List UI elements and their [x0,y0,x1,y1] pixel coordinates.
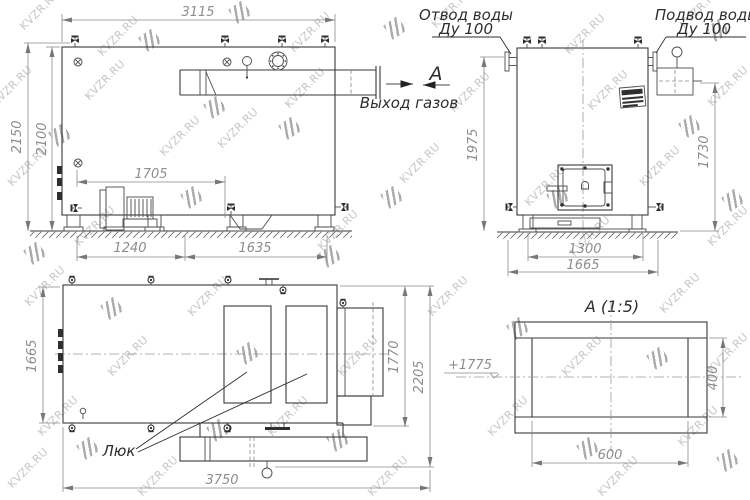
support-legs [64,215,334,231]
section-label: А [428,63,443,85]
vent-fitting-icon [74,58,82,66]
dim-side-height-body: 2100 [35,122,50,155]
dim-plan-total-depth: 2205 [412,360,427,393]
side-dimensions [24,14,335,261]
dim-detail-width: 600 [598,448,623,463]
top-flange-stub [259,279,279,285]
plan-view: Люк 1665 1770 2205 3750 [25,277,434,492]
valve-icon [634,38,642,49]
dim-plan-duct: 1770 [387,340,402,373]
valve-icon [71,37,79,48]
vent-fitting-icon [223,58,231,66]
front-view: Отвод воды Ду 100 Подвод воды Ду 100 197… [419,6,750,276]
hatch-2 [286,306,327,403]
base-frame [519,215,646,232]
valve-icon [224,423,230,431]
valve-icon [340,300,346,308]
drain-valve-icon [652,203,663,211]
valve-icon [221,37,229,48]
dim-front-height-right: 1730 [697,135,712,168]
dim-plan-length: 3750 [205,473,238,488]
gas-duct [180,66,380,99]
gas-outlet-label: Выход газов [360,94,459,112]
water-outlet-label-2: Ду 100 [438,20,493,38]
valve-icon [69,277,75,285]
valve-icon [523,38,531,49]
blower-fan [100,187,160,231]
drain-valve-icon [72,204,83,212]
dim-front-width: 1665 [566,258,599,273]
sensor-port [243,57,252,79]
drain-valve-icon [337,203,348,211]
water-inlet-label-2: Ду 100 [676,20,731,38]
valve-icon [278,37,286,48]
dim-side-fan: 1705 [134,167,167,182]
ground-hatch [30,232,352,238]
side-view: 3115 2150 2100 1705 1240 1635 А Выход га… [10,5,458,261]
detail-title: А (1:5) [584,297,639,316]
door-handle [547,186,567,191]
door-hinges-plan [58,329,63,373]
door-hinges-side [57,166,62,200]
furnace-door [547,165,612,210]
peephole-icon [582,182,589,190]
manhole-flange [269,52,287,70]
hatch-1 [224,306,271,403]
valve-icon [148,423,154,431]
valve-icon [225,277,231,285]
dim-detail-height: 400 [706,366,721,391]
valve-icon [69,423,75,431]
dim-side-width: 3115 [181,5,214,20]
detail-view-a: А (1:5) +1775 400 600 [444,297,742,467]
boiler-body-front [517,48,648,215]
elevation-mark: +1775 [448,358,492,373]
drawing-canvas: KVZR.RUKVZR.RUKVZR.RUKVZR.RUKVZR.RUKVZR.… [0,0,750,500]
valve-icon [148,277,154,285]
dim-side-height-total: 2150 [10,120,25,153]
drain-valve-icon [227,205,235,216]
duct-plan [180,302,383,478]
leader-line [138,374,307,452]
valve-icon [321,37,329,48]
drain-valve-icon [507,203,518,211]
dim-side-base-right: 1635 [238,241,271,256]
valve-icon [280,285,286,293]
small-fitting [80,408,86,419]
dim-front-base: 1300 [568,242,601,257]
valve-icon [538,38,546,49]
nameplate [619,86,646,108]
dim-plan-depth: 1665 [25,339,40,372]
ground-hatch [497,233,678,239]
dim-front-height-left: 1975 [466,128,481,161]
hatch-label: Люк [102,442,136,460]
water-inlet-assembly [648,47,702,95]
vent-fitting-icon [74,159,82,167]
detail-dimensions [532,338,727,467]
boiler-technical-drawing: 3115 2150 2100 1705 1240 1635 А Выход га… [0,0,750,500]
dim-side-base-left: 1240 [113,241,146,256]
water-outlet-flange [505,52,517,71]
